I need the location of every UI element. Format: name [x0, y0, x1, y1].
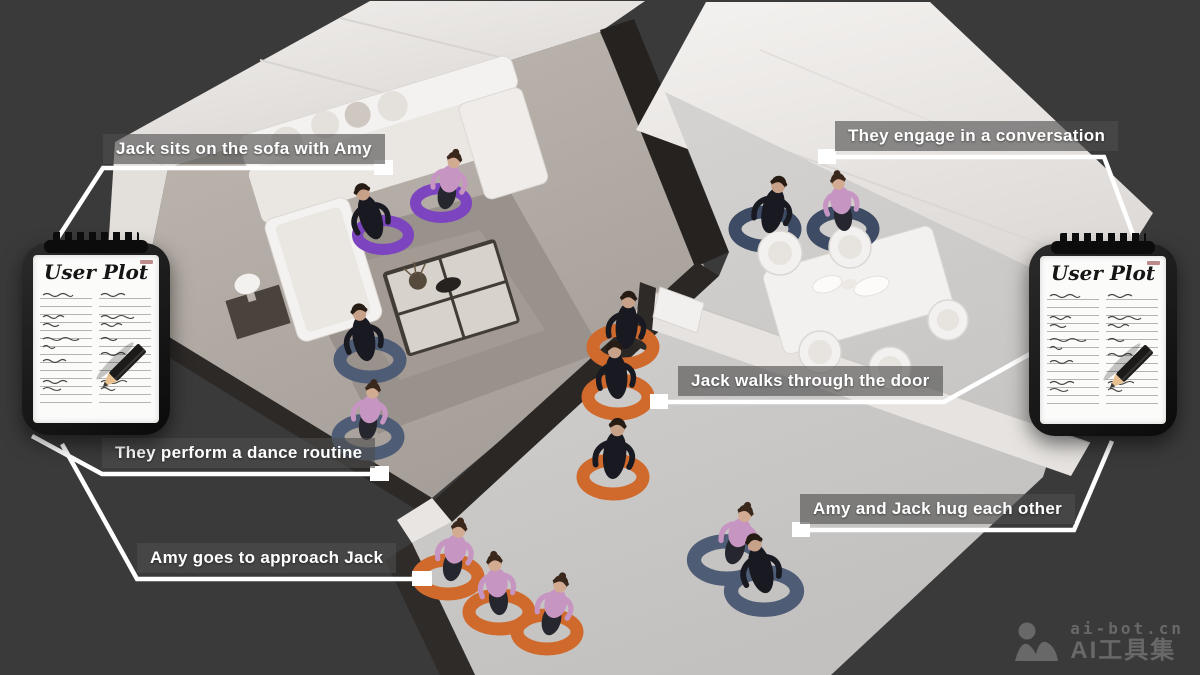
figure-stage: Jack sits on the sofa with Amy They enga…: [0, 0, 1200, 675]
annotation-conversation: They engage in a conversation: [835, 121, 1118, 151]
annotation-approach: Amy goes to approach Jack: [137, 543, 396, 573]
apartment-3d-scene: [0, 0, 1200, 675]
user-plot-paper: User Plot: [33, 255, 159, 423]
handwriting-column: [1106, 292, 1158, 408]
binding-bar-icon: [44, 240, 148, 253]
handwriting-column: [1047, 292, 1099, 408]
binding-bar-icon: [1051, 241, 1155, 254]
watermark: ai-bot.cn AI工具集: [1014, 621, 1184, 663]
paper-mark: [1147, 261, 1160, 265]
watermark-site: ai-bot.cn: [1070, 621, 1184, 638]
watermark-brand: AI工具集: [1070, 638, 1184, 663]
handwriting-column: [40, 291, 92, 407]
paper-mark: [140, 260, 153, 264]
annotation-door: Jack walks through the door: [678, 366, 943, 396]
user-plot-clipboard-right: User Plot: [1029, 244, 1177, 436]
handwriting-column: [99, 291, 151, 407]
aibot-logo-icon: [1014, 621, 1060, 663]
annotation-sofa: Jack sits on the sofa with Amy: [103, 134, 385, 164]
user-plot-clipboard-left: User Plot: [22, 243, 170, 435]
annotation-hug: Amy and Jack hug each other: [800, 494, 1075, 524]
annotation-dance: They perform a dance routine: [102, 438, 375, 468]
user-plot-paper: User Plot: [1040, 256, 1166, 424]
